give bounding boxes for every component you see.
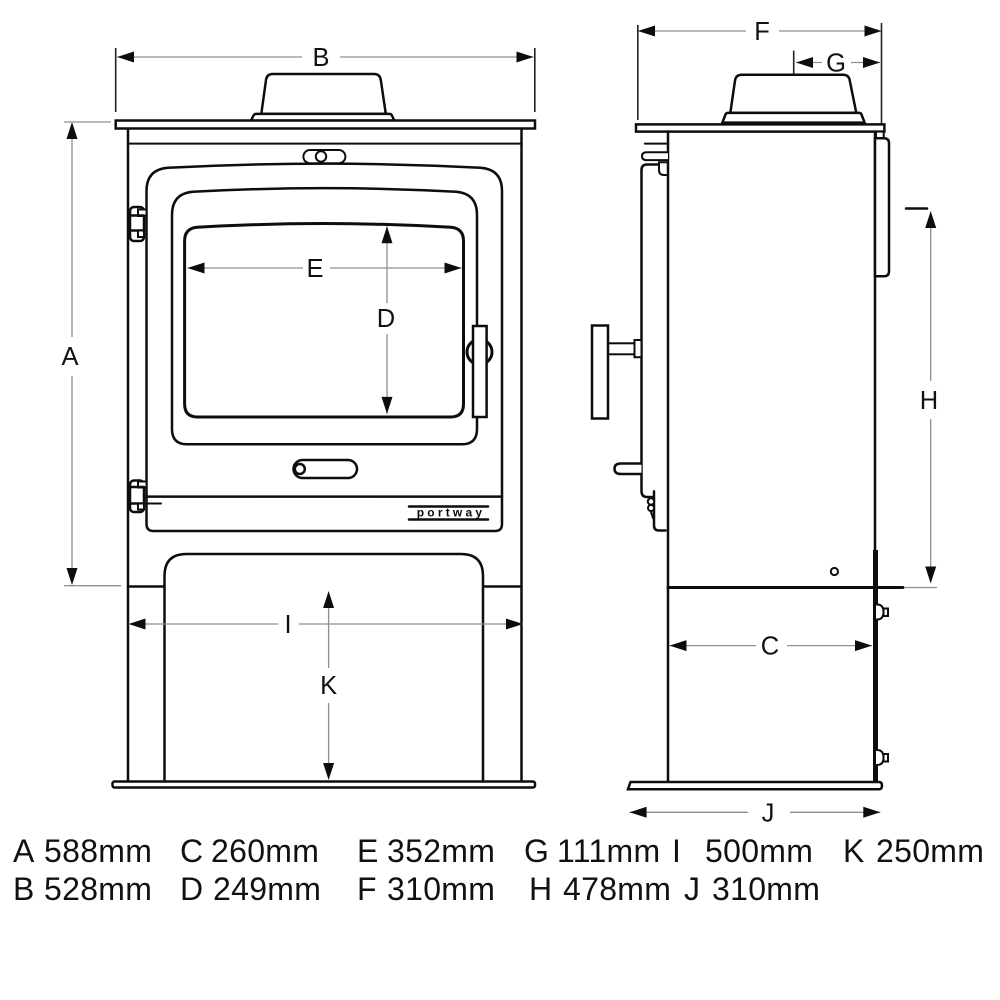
svg-text:588mm: 588mm	[44, 833, 152, 869]
svg-text:I: I	[672, 833, 681, 869]
svg-text:B: B	[13, 871, 35, 907]
svg-text:E: E	[357, 833, 379, 869]
svg-text:250mm: 250mm	[876, 833, 984, 869]
svg-text:portway: portway	[417, 506, 485, 520]
svg-text:H: H	[920, 387, 938, 415]
svg-text:F: F	[357, 871, 377, 907]
svg-text:310mm: 310mm	[712, 871, 820, 907]
svg-text:A: A	[61, 343, 78, 371]
svg-text:249mm: 249mm	[213, 871, 321, 907]
svg-text:500mm: 500mm	[705, 833, 813, 869]
svg-text:G: G	[826, 50, 846, 78]
svg-text:528mm: 528mm	[44, 871, 152, 907]
svg-text:352mm: 352mm	[387, 833, 495, 869]
svg-text:K: K	[320, 672, 337, 700]
svg-text:K: K	[843, 833, 865, 869]
svg-text:F: F	[754, 18, 770, 46]
svg-text:B: B	[312, 44, 329, 72]
svg-text:J: J	[684, 871, 700, 907]
svg-text:I: I	[284, 611, 291, 639]
svg-text:C: C	[761, 633, 779, 661]
svg-text:J: J	[762, 799, 775, 827]
svg-text:H: H	[529, 871, 552, 907]
svg-text:A: A	[13, 833, 35, 869]
svg-text:111mm: 111mm	[557, 833, 660, 869]
svg-text:260mm: 260mm	[211, 833, 319, 869]
svg-text:478mm: 478mm	[563, 871, 671, 907]
svg-text:C: C	[180, 833, 203, 869]
svg-text:D: D	[180, 871, 203, 907]
svg-text:D: D	[377, 305, 395, 333]
svg-text:310mm: 310mm	[387, 871, 495, 907]
svg-text:E: E	[306, 255, 323, 283]
svg-text:G: G	[524, 833, 549, 869]
